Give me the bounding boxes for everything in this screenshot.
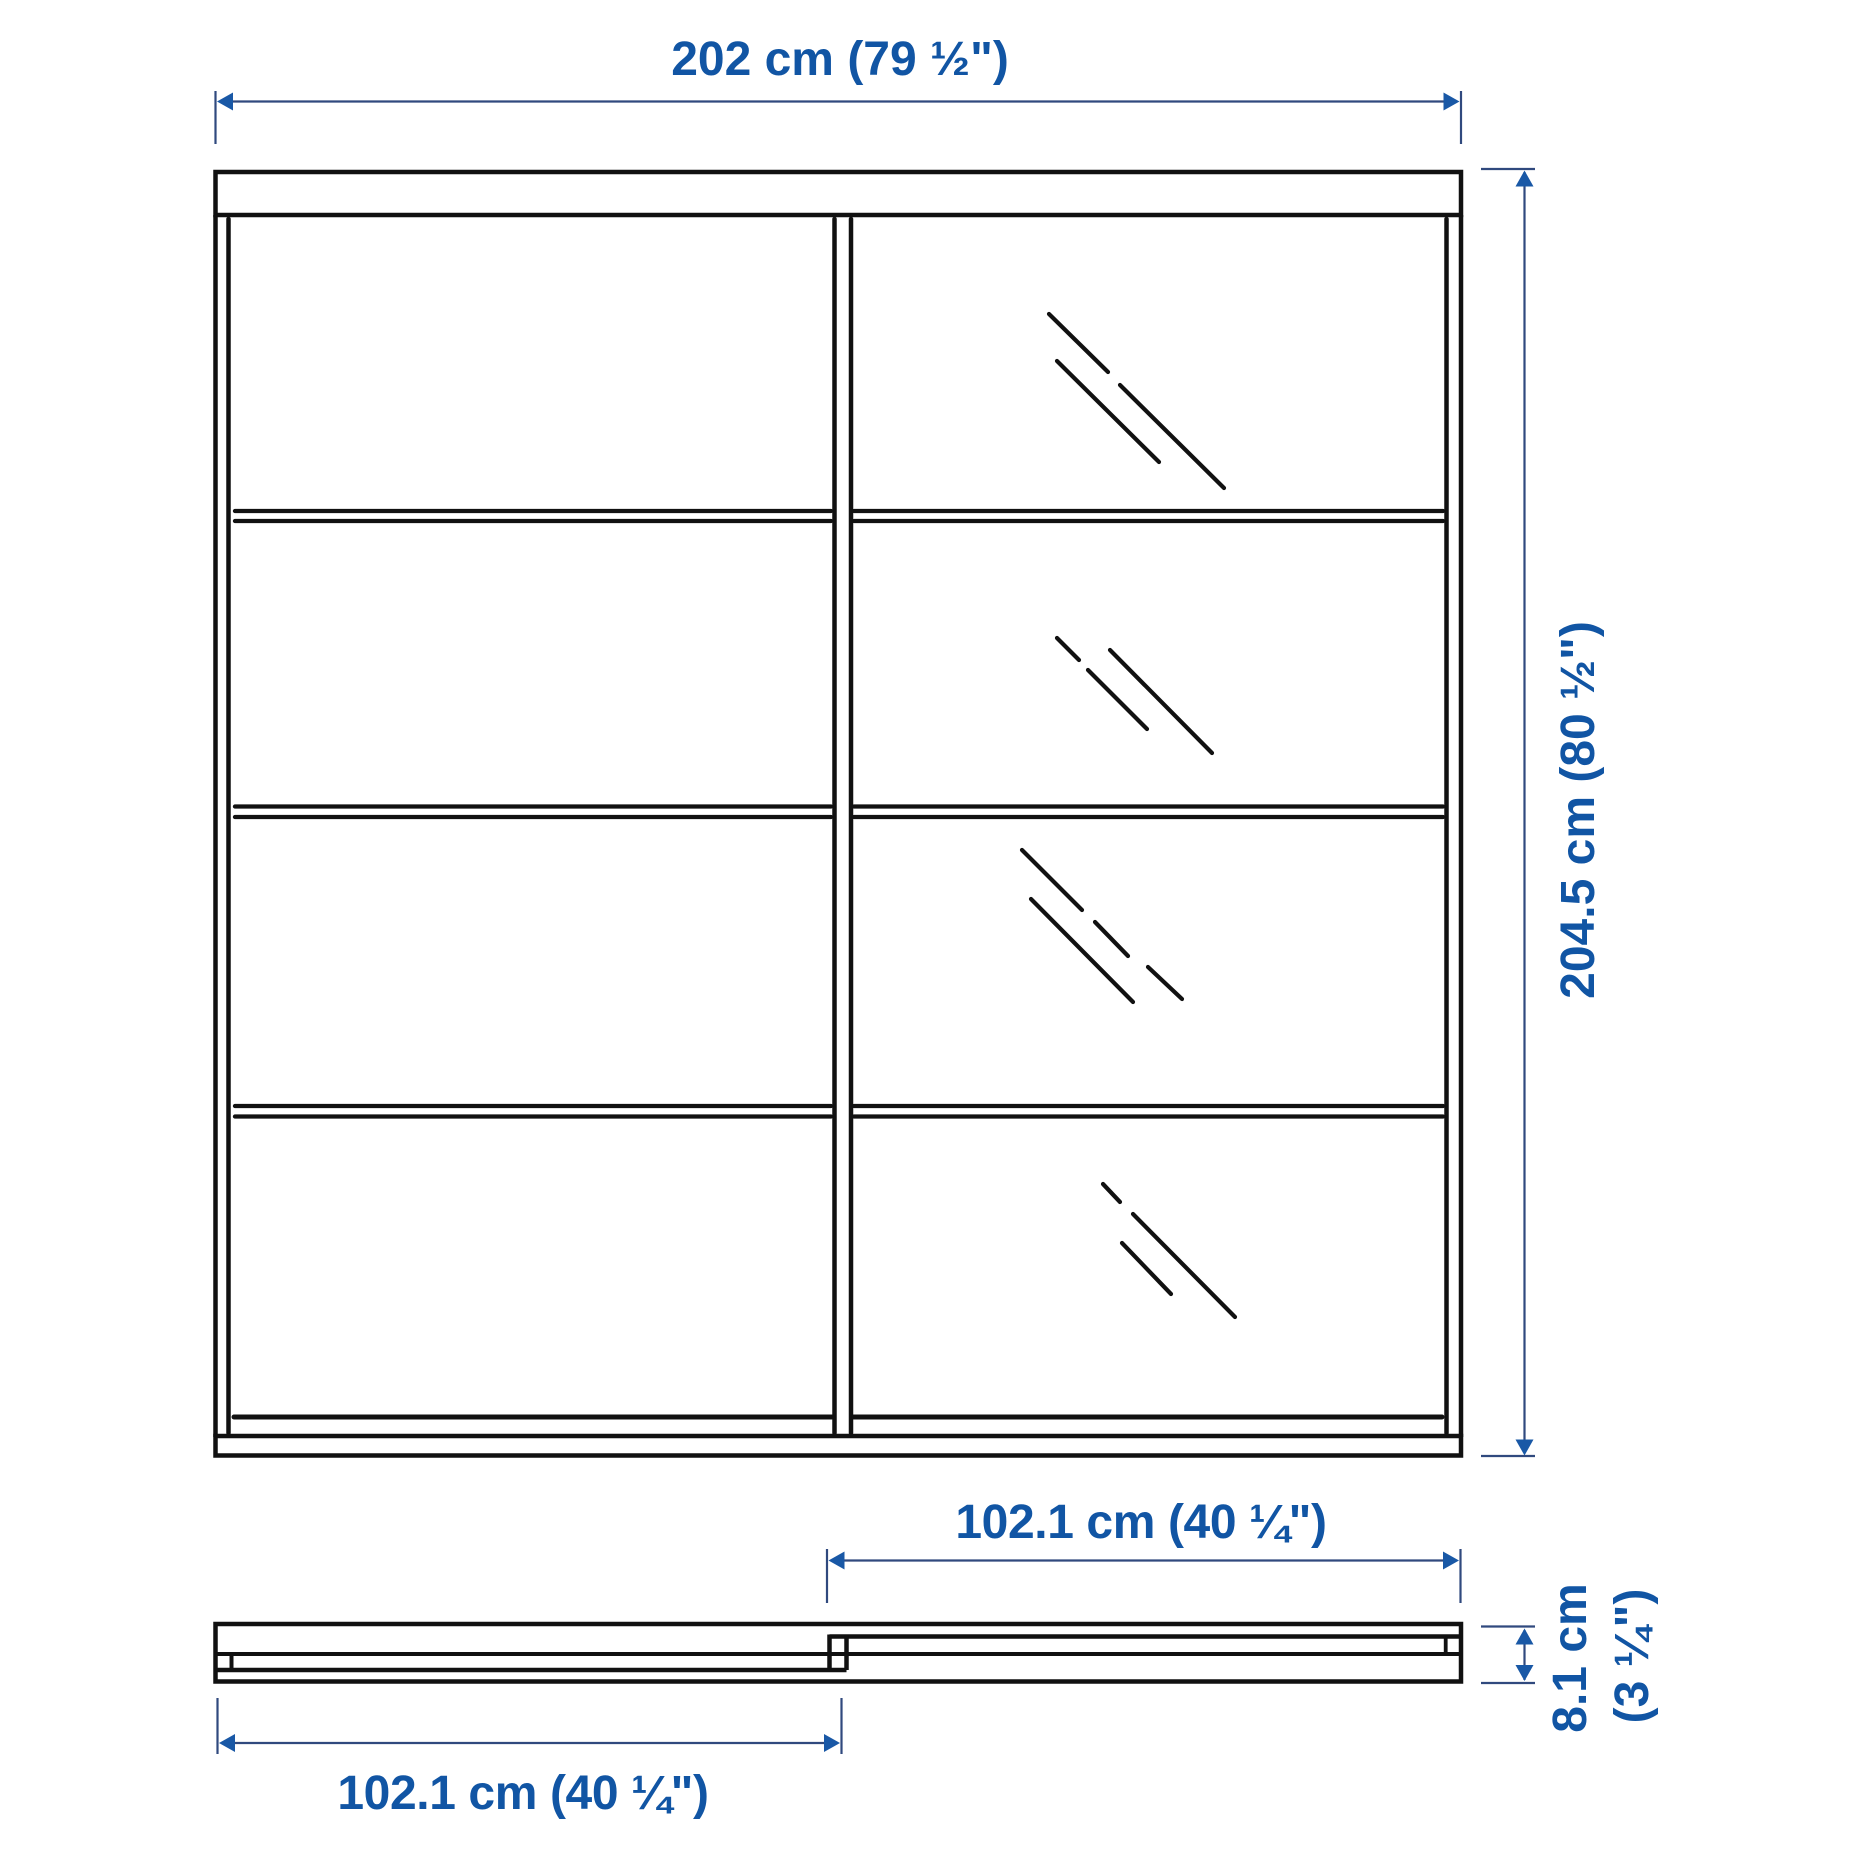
svg-text:102.1 cm (40 ¼"): 102.1 cm (40 ¼") — [955, 1496, 1326, 1549]
svg-text:204.5 cm (80 ½"): 204.5 cm (80 ½") — [1552, 621, 1605, 999]
svg-text:202 cm (79 ½"): 202 cm (79 ½") — [671, 33, 1009, 86]
svg-text:102.1 cm (40 ¼"): 102.1 cm (40 ¼") — [337, 1767, 708, 1820]
svg-text:(3 ¼"): (3 ¼") — [1606, 1589, 1659, 1724]
svg-text:8.1 cm: 8.1 cm — [1544, 1583, 1597, 1732]
